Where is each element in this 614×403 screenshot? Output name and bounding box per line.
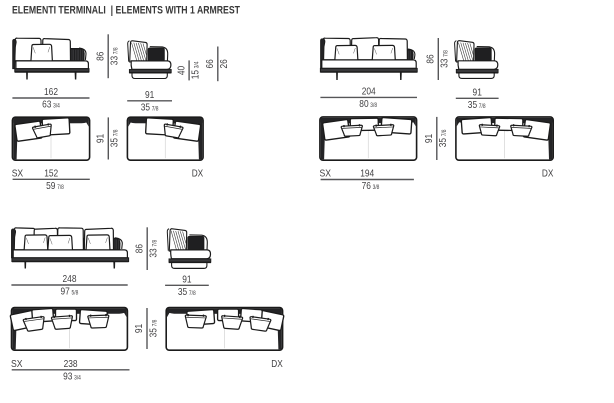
svg-text:7/8: 7/8 [442,129,448,136]
svg-text:238: 238 [64,358,78,370]
svg-text:SX: SX [11,358,23,370]
svg-text:91: 91 [95,134,107,143]
svg-text:91: 91 [133,324,145,333]
svg-text:35: 35 [109,138,121,147]
svg-text:7/8: 7/8 [479,103,486,110]
svg-text:3/4: 3/4 [74,374,81,381]
svg-text:80: 80 [359,98,368,110]
svg-text:3/8: 3/8 [370,102,377,109]
svg-text:3/8: 3/8 [373,184,380,191]
svg-text:76: 76 [362,180,371,192]
svg-text:33: 33 [109,56,121,65]
svg-text:91: 91 [423,134,435,143]
svg-text:86: 86 [94,51,106,60]
svg-text:7/8: 7/8 [189,290,196,297]
svg-text:40: 40 [175,66,187,75]
svg-text:7/8: 7/8 [114,47,120,54]
svg-text:194: 194 [360,168,374,180]
svg-text:63: 63 [42,99,51,111]
svg-text:66: 66 [204,59,216,68]
svg-text:35: 35 [437,138,449,147]
svg-text:33: 33 [439,58,451,67]
svg-text:86: 86 [425,54,437,63]
svg-text:15: 15 [190,70,202,79]
svg-text:248: 248 [63,273,77,285]
svg-text:33: 33 [148,248,160,257]
svg-text:97: 97 [61,286,70,298]
svg-text:3/4: 3/4 [53,103,60,110]
svg-text:7/8: 7/8 [114,129,120,136]
svg-text:7/8: 7/8 [444,50,450,57]
svg-text:162: 162 [44,86,58,98]
svg-text:35: 35 [147,328,159,337]
svg-text:93: 93 [63,370,72,382]
svg-text:152: 152 [44,167,58,179]
svg-text:7/8: 7/8 [152,319,158,326]
svg-text:35: 35 [468,99,477,111]
svg-text:91: 91 [182,273,191,285]
svg-text:26: 26 [218,59,230,68]
svg-text:86: 86 [133,244,145,253]
svg-text:ELEMENTI TERMINALI | ELEMENTS: ELEMENTI TERMINALI | ELEMENTS WITH 1 ARM… [12,4,240,16]
svg-text:91: 91 [473,86,482,98]
svg-text:SX: SX [12,167,24,179]
svg-text:7/8: 7/8 [57,184,64,191]
svg-text:35: 35 [141,101,150,113]
svg-text:7/8: 7/8 [153,239,159,246]
svg-text:DX: DX [542,167,554,179]
svg-text:91: 91 [145,89,154,101]
svg-text:7/8: 7/8 [152,105,159,112]
svg-text:59: 59 [46,180,55,192]
svg-text:5/8: 5/8 [72,290,79,297]
svg-text:DX: DX [192,167,204,179]
svg-text:3/4: 3/4 [195,61,201,68]
svg-text:DX: DX [271,358,283,370]
svg-text:204: 204 [362,86,376,98]
svg-text:SX: SX [320,167,332,179]
svg-text:35: 35 [178,286,187,298]
